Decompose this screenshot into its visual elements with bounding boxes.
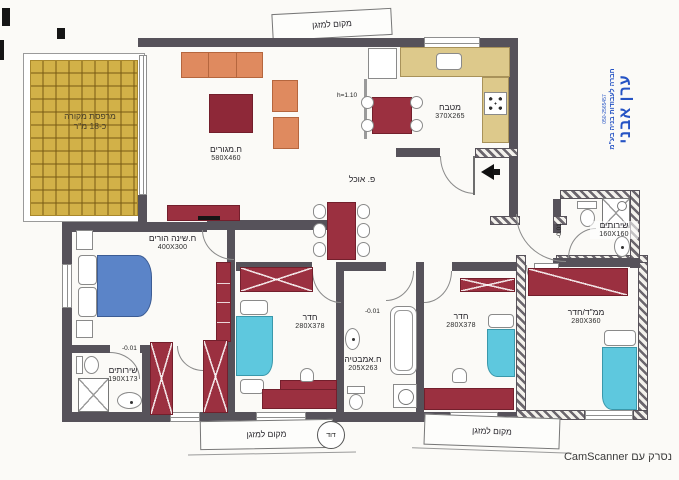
level-wc-left: -0.01 bbox=[122, 345, 137, 352]
parents-wardrobe bbox=[216, 262, 231, 342]
stamp-text: 050-2565457 חברה לעבודות בניה בע"מ ערן א… bbox=[603, 25, 657, 193]
bedroom2-door-arc bbox=[424, 271, 452, 303]
room-label-bedroom1: חדר 280X378 bbox=[290, 313, 330, 331]
engineer-stamp: 050-2565457 חברה לעבודות בניה בע"מ ערן א… bbox=[598, 24, 662, 194]
camscanner-footer: נסרק עם CamScanner bbox=[460, 451, 672, 463]
wall bbox=[509, 38, 518, 158]
dining-chair bbox=[357, 204, 370, 219]
bathroom-door-arc bbox=[386, 271, 414, 301]
kitchen-sink bbox=[436, 53, 462, 70]
window bbox=[170, 412, 200, 422]
wall-hatched-mamad bbox=[516, 255, 526, 420]
room-label-bath: ח.אמבטיה 205X263 bbox=[340, 355, 386, 373]
coffee-table bbox=[209, 94, 253, 133]
room-label-wc-right: שירותים 160X160 bbox=[590, 221, 638, 239]
room-label-balcony: מרפסת מקורה כ-18 מ"ר bbox=[40, 112, 140, 132]
nightstand bbox=[240, 379, 264, 394]
toilet-tank bbox=[577, 201, 597, 209]
wall bbox=[509, 156, 518, 218]
bedroom2-desk bbox=[424, 388, 514, 410]
scanned-floor-plan-page: מקום למזגן מרפסת מקורה כ-18 מ"ר bbox=[0, 0, 679, 480]
dining-chair bbox=[357, 223, 370, 238]
armchair bbox=[272, 80, 298, 112]
sofa bbox=[181, 52, 263, 78]
dining-chair bbox=[313, 204, 326, 219]
parents-window bbox=[62, 264, 72, 308]
wall bbox=[553, 258, 640, 267]
ac-bottom-right-label: מקום למזגן bbox=[472, 426, 512, 437]
counter-height-label: h=1.10 bbox=[337, 92, 357, 99]
sink bbox=[614, 236, 630, 257]
bedroom1-bed bbox=[236, 316, 273, 376]
tv bbox=[198, 216, 220, 220]
breakfast-table bbox=[372, 97, 412, 134]
wall bbox=[62, 345, 110, 353]
ac-top-label: מקום למזגן bbox=[312, 19, 352, 31]
armchair bbox=[273, 117, 299, 149]
entrance-arrow-tail bbox=[493, 169, 500, 175]
chair bbox=[452, 368, 467, 383]
hall-wardrobe bbox=[150, 342, 173, 415]
nightstand bbox=[76, 230, 93, 250]
pillow bbox=[488, 314, 514, 328]
closet-nook-door-arc bbox=[177, 346, 203, 371]
wall bbox=[62, 222, 72, 264]
wall-hatched-mamad bbox=[633, 410, 648, 420]
living-balcony-sliding-window bbox=[139, 55, 147, 195]
scan-speck bbox=[2, 8, 10, 26]
wall bbox=[140, 345, 150, 353]
boiler-symbol: דוד bbox=[317, 421, 345, 449]
scan-speck bbox=[57, 28, 65, 39]
wall bbox=[142, 353, 150, 415]
bedroom1-door-arc bbox=[312, 271, 341, 303]
entry-door-leaf bbox=[473, 156, 475, 195]
dining-label: פ. אוכל bbox=[340, 175, 384, 185]
nightstand bbox=[76, 320, 93, 338]
bedroom1-wardrobe bbox=[240, 267, 313, 292]
level-wc-right: -0.01 bbox=[556, 223, 563, 238]
entry-door-arc bbox=[440, 156, 475, 194]
pillow bbox=[240, 300, 268, 315]
ac-bottom-left-label: מקום למזגן bbox=[247, 429, 287, 439]
bedroom2-wardrobe bbox=[460, 278, 515, 292]
ac-unit-bottom-right-box: מקום למזגן bbox=[424, 414, 561, 450]
room-label-parents: ח.שינה הורים 400X300 bbox=[135, 234, 210, 252]
breakfast-chair bbox=[361, 119, 374, 132]
hall-wardrobe bbox=[203, 340, 228, 413]
mamad-bed bbox=[602, 347, 637, 410]
pillow bbox=[78, 255, 97, 285]
wall bbox=[62, 308, 72, 420]
bedroom1-desk bbox=[262, 389, 337, 409]
breakfast-chair bbox=[361, 96, 374, 109]
toilet-bowl bbox=[349, 394, 363, 410]
breakfast-chair bbox=[410, 119, 423, 132]
pillow bbox=[78, 287, 97, 317]
toilet-tank bbox=[347, 386, 365, 394]
toilet-bowl bbox=[84, 356, 99, 374]
sink bbox=[117, 392, 142, 409]
bedroom2-bed bbox=[487, 329, 515, 377]
pillow bbox=[604, 330, 636, 346]
dining-table bbox=[327, 202, 356, 260]
wall bbox=[396, 148, 440, 157]
toilet-tank bbox=[76, 356, 83, 374]
shower bbox=[78, 378, 109, 412]
washing-machine bbox=[393, 384, 417, 408]
mamad-wardrobe bbox=[528, 268, 628, 296]
scan-line bbox=[188, 452, 356, 456]
stamp-subtitle: חברה לעבודות בניה בע"מ bbox=[609, 25, 617, 193]
wall bbox=[416, 262, 424, 420]
dining-chair bbox=[357, 242, 370, 257]
balcony-tiles bbox=[30, 60, 138, 216]
fridge bbox=[368, 48, 397, 79]
breakfast-chair bbox=[410, 96, 423, 109]
parents-bed bbox=[97, 255, 152, 317]
stove bbox=[484, 92, 507, 115]
mamad-window bbox=[585, 410, 633, 420]
ac-unit-top-box: מקום למזגן bbox=[271, 8, 392, 41]
room-label-mamad: ממ"ד/חדר 280X360 bbox=[558, 308, 614, 326]
room-label-living: ח.מגורים 580X460 bbox=[196, 145, 256, 163]
sink bbox=[345, 328, 360, 350]
level-bath: -0.01 bbox=[365, 308, 380, 315]
wall-hatched-mamad bbox=[638, 262, 648, 420]
room-label-bedroom2: חדר 280X378 bbox=[440, 312, 482, 330]
dining-chair bbox=[313, 242, 326, 257]
room-label-kitchen: מטבח 370X265 bbox=[425, 103, 475, 121]
chair bbox=[300, 368, 314, 382]
wall bbox=[452, 262, 516, 271]
wall bbox=[340, 262, 386, 271]
boiler-label: דוד bbox=[326, 432, 336, 439]
dining-chair bbox=[313, 223, 326, 238]
scan-speck bbox=[0, 40, 4, 60]
bathtub bbox=[390, 306, 417, 375]
ac-unit-bottom-left-box: מקום למזגן bbox=[200, 419, 333, 450]
stamp-name: ערן אבני bbox=[617, 25, 635, 193]
